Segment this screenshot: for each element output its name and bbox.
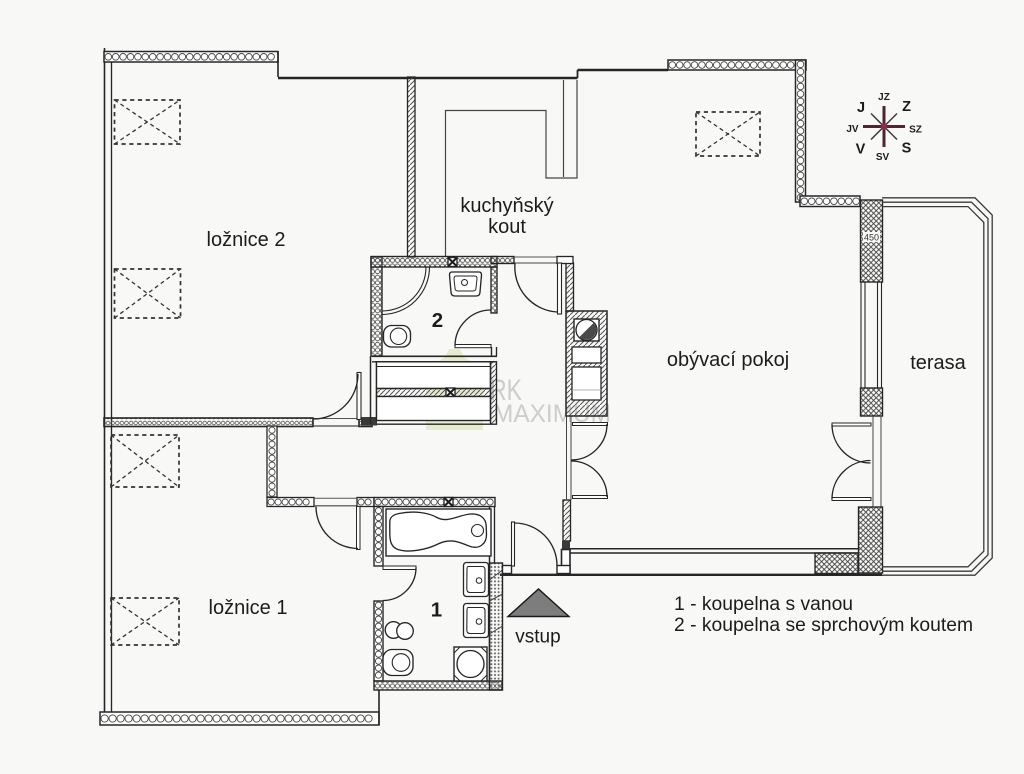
svg-text:kuchyňský: kuchyňský — [460, 195, 553, 217]
svg-text:JZ: JZ — [878, 92, 890, 103]
svg-text:S: S — [902, 141, 912, 157]
svg-text:1: 1 — [431, 599, 442, 622]
svg-text:kout: kout — [488, 216, 526, 238]
svg-text:SV: SV — [876, 152, 890, 163]
svg-text:terasa: terasa — [910, 352, 966, 374]
svg-text:V: V — [856, 142, 866, 158]
svg-text:ložnice 2: ložnice 2 — [207, 229, 286, 251]
svg-text:2: 2 — [432, 309, 443, 332]
svg-text:Z: Z — [902, 99, 911, 115]
svg-text:SZ: SZ — [909, 125, 922, 136]
svg-text:vstup: vstup — [515, 627, 560, 648]
svg-text:obývací pokoj: obývací pokoj — [667, 349, 789, 371]
svg-text:ložnice 1: ložnice 1 — [209, 597, 288, 619]
svg-text:J: J — [857, 100, 865, 116]
svg-text:450: 450 — [864, 233, 879, 243]
svg-text:1 - koupelna s vanou: 1 - koupelna s vanou — [674, 594, 853, 615]
svg-text:JV: JV — [846, 124, 859, 135]
svg-text:2 - koupelna se sprchovým kout: 2 - koupelna se sprchovým koutem — [674, 615, 973, 636]
